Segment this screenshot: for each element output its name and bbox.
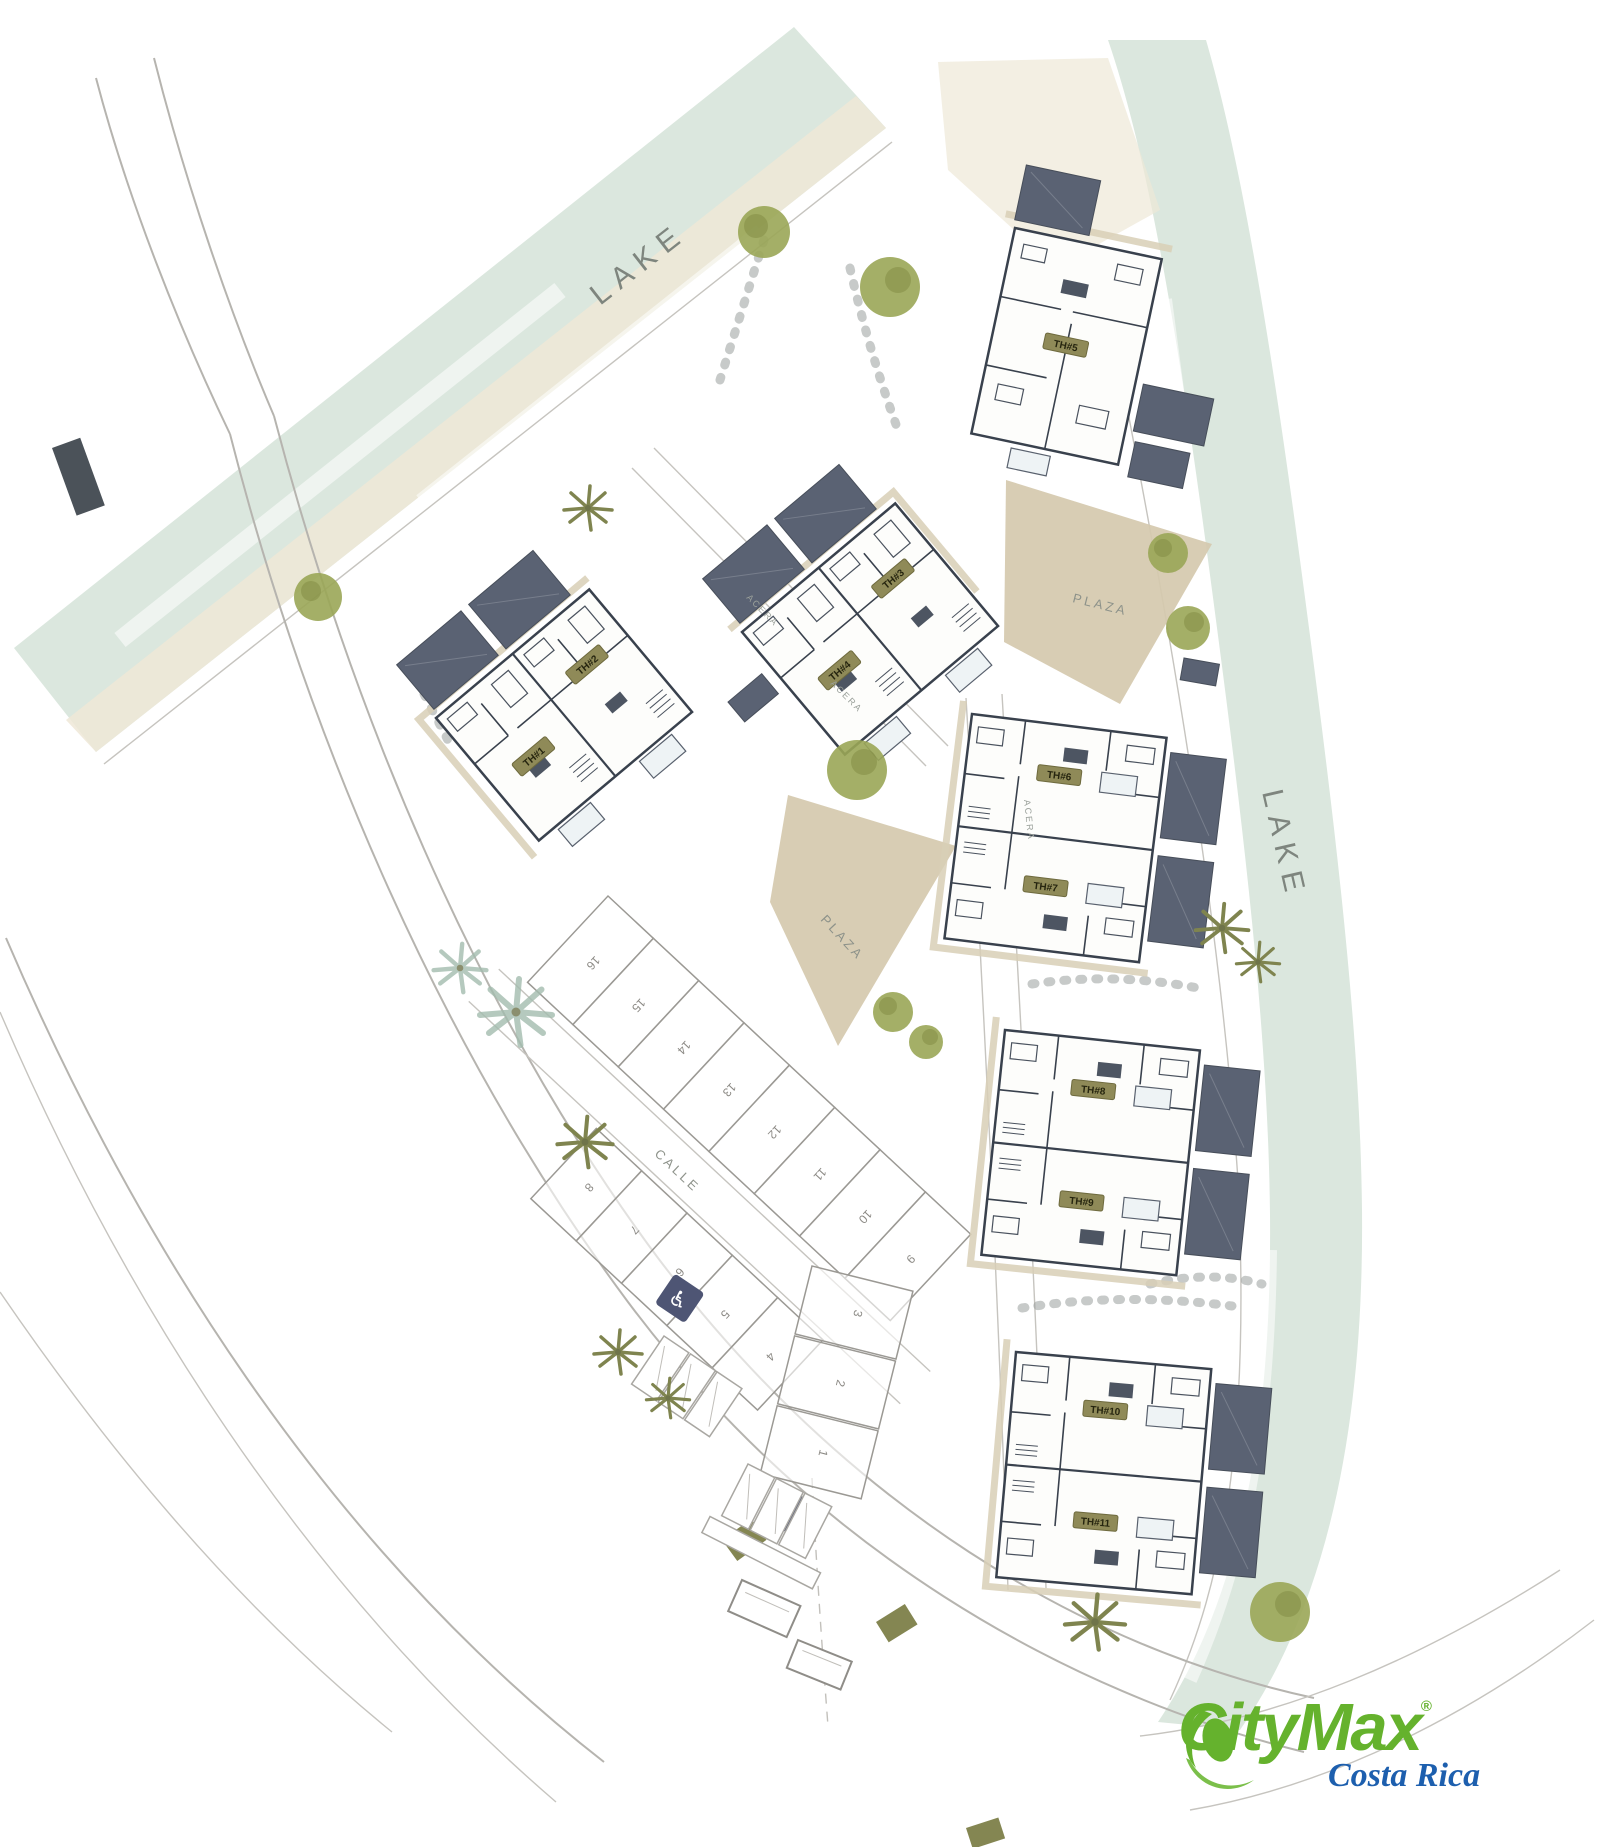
service-structure	[787, 1640, 852, 1690]
region-text: Costa Rica	[1328, 1757, 1598, 1795]
building-th8-th9: TH#8 TH#9	[970, 1017, 1262, 1292]
building-th6-th7: TH#6 TH#7	[933, 701, 1229, 980]
plaza-central: PLAZA	[770, 795, 956, 1046]
speed-bump	[876, 1604, 918, 1642]
registered-mark: ®	[1421, 1698, 1432, 1715]
site-plan: LAKE LAKE	[0, 0, 1600, 1847]
pergola-structure	[728, 674, 778, 722]
citymax-logo: CityMax ® Costa Rica	[1178, 1694, 1598, 1795]
speed-bump	[966, 1817, 1005, 1847]
building-th1-th2: TH#1 TH#2	[383, 535, 714, 869]
service-structure	[728, 1580, 800, 1637]
crosswalk-bar	[52, 438, 105, 516]
citymax-leaf-icon	[1178, 1700, 1256, 1800]
